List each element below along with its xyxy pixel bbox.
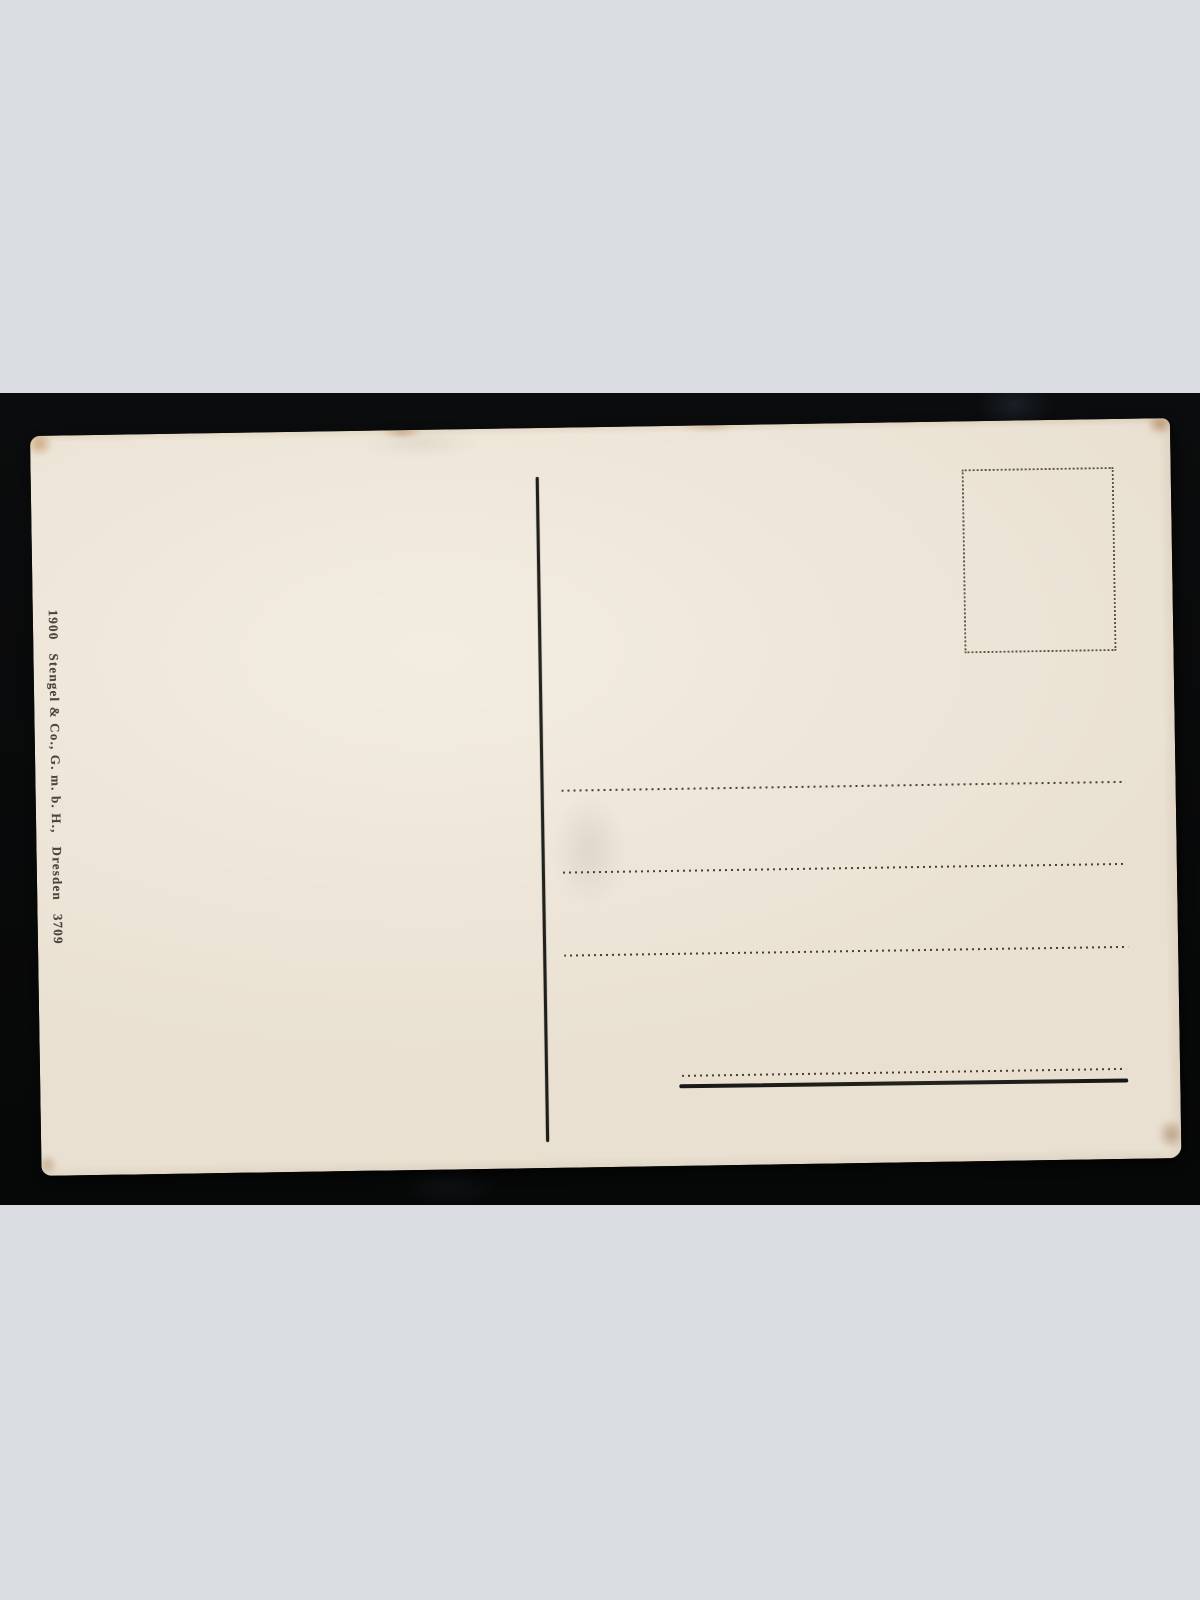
- worn-mark-top-edge-2: [678, 422, 742, 432]
- address-line-2: [563, 863, 1127, 874]
- black-mat: 1900 Stengel & Co., G. m. b. H., Dresden…: [0, 393, 1200, 1205]
- paper-smudge: [552, 792, 628, 908]
- imprint-city: Dresden: [51, 846, 65, 901]
- stamp-box: [962, 467, 1117, 653]
- address-line-4: [682, 1068, 1126, 1077]
- imprint-number: 3709: [52, 914, 65, 945]
- worn-mark-top-edge: [380, 426, 424, 439]
- imprint-publisher: Stengel & Co., G. m. b. H.,: [48, 653, 64, 833]
- worn-corner-bottom-left: [36, 1154, 58, 1176]
- publisher-imprint: 1900 Stengel & Co., G. m. b. H., Dresden…: [41, 609, 73, 971]
- divider-line: [536, 477, 549, 1142]
- address-base-line: [679, 1078, 1128, 1088]
- imprint-year: 1900: [47, 610, 60, 641]
- address-line-3: [564, 946, 1128, 957]
- worn-corner-top-left: [30, 431, 53, 457]
- postcard-back: 1900 Stengel & Co., G. m. b. H., Dresden…: [30, 418, 1181, 1176]
- paper-stain: [360, 427, 480, 459]
- worn-corner-top-right: [1146, 418, 1174, 435]
- worn-corner-bottom-right: [1157, 1118, 1182, 1150]
- address-line-1: [562, 781, 1126, 792]
